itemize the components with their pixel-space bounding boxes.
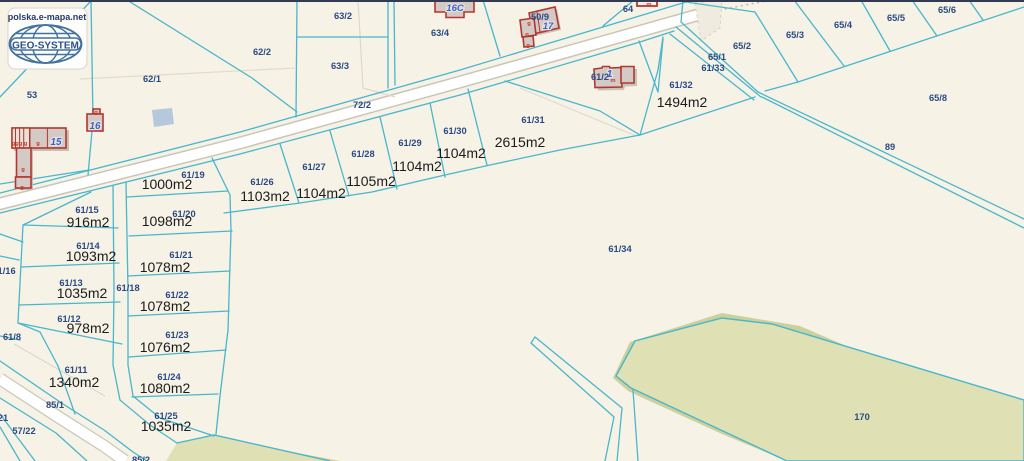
svg-text:15: 15 xyxy=(51,137,62,148)
svg-text:1080m2: 1080m2 xyxy=(140,380,191,396)
svg-text:57/22: 57/22 xyxy=(12,426,35,436)
svg-text:m: m xyxy=(646,2,651,8)
svg-text:1104m2: 1104m2 xyxy=(296,185,346,201)
svg-text:g: g xyxy=(19,141,23,147)
svg-text:53: 53 xyxy=(27,90,37,100)
svg-text:1098m2: 1098m2 xyxy=(142,213,193,229)
svg-text:65/3: 65/3 xyxy=(786,30,804,40)
svg-text:g: g xyxy=(94,110,98,116)
svg-text:16C: 16C xyxy=(446,3,464,14)
svg-text:1104m2: 1104m2 xyxy=(392,158,442,174)
svg-text:1078m2: 1078m2 xyxy=(140,298,191,314)
svg-text:1035m2: 1035m2 xyxy=(141,418,192,434)
svg-text:g: g xyxy=(21,167,25,173)
svg-text:g: g xyxy=(24,141,28,147)
svg-text:62/2: 62/2 xyxy=(253,47,271,57)
svg-text:65/2: 65/2 xyxy=(733,41,751,51)
svg-text:g: g xyxy=(36,141,40,147)
svg-text:2615m2: 2615m2 xyxy=(495,134,546,150)
svg-text:978m2: 978m2 xyxy=(67,320,110,336)
svg-text:61/2: 61/2 xyxy=(591,72,609,82)
svg-text:61/33: 61/33 xyxy=(701,63,724,73)
svg-text:61/32: 61/32 xyxy=(669,80,692,90)
svg-text:65/8: 65/8 xyxy=(929,93,947,103)
svg-text:72/2: 72/2 xyxy=(353,100,371,110)
svg-text:61/31: 61/31 xyxy=(521,115,544,125)
svg-text:61/18: 61/18 xyxy=(116,283,139,293)
svg-text:85/1: 85/1 xyxy=(46,400,64,410)
svg-text:916m2: 916m2 xyxy=(67,214,110,230)
svg-text:65/6: 65/6 xyxy=(938,5,956,15)
svg-text:61/30: 61/30 xyxy=(443,126,466,136)
svg-text:g: g xyxy=(20,185,24,191)
svg-text:g: g xyxy=(527,21,531,27)
svg-text:89: 89 xyxy=(885,142,895,152)
svg-text:17: 17 xyxy=(543,21,554,32)
svg-text:1105m2: 1105m2 xyxy=(346,173,396,189)
svg-text:65/1: 65/1 xyxy=(708,52,726,62)
svg-text:1076m2: 1076m2 xyxy=(140,339,191,355)
svg-text:170: 170 xyxy=(854,412,870,422)
svg-text:62/1: 62/1 xyxy=(143,74,161,84)
svg-text:61/8: 61/8 xyxy=(3,332,21,342)
svg-text:1078m2: 1078m2 xyxy=(140,259,191,275)
svg-text:g: g xyxy=(525,32,529,38)
svg-text:21: 21 xyxy=(0,413,8,423)
svg-text:1103m2: 1103m2 xyxy=(240,188,290,204)
svg-text:65/5: 65/5 xyxy=(887,13,905,23)
svg-text:63/3: 63/3 xyxy=(331,61,349,71)
svg-text:GEO-SYSTEM: GEO-SYSTEM xyxy=(12,41,79,52)
svg-text:61/26: 61/26 xyxy=(250,177,273,187)
svg-text:1093m2: 1093m2 xyxy=(66,248,117,264)
svg-text:85/2: 85/2 xyxy=(132,455,150,461)
svg-text:1494m2: 1494m2 xyxy=(657,94,708,110)
svg-text:polska.e-mapa.net: polska.e-mapa.net xyxy=(8,12,87,22)
svg-text:64: 64 xyxy=(623,4,634,14)
svg-text:61/28: 61/28 xyxy=(351,149,374,159)
svg-text:61/27: 61/27 xyxy=(302,162,325,172)
svg-text:63/2: 63/2 xyxy=(334,11,352,21)
svg-text:1000m2: 1000m2 xyxy=(142,176,193,192)
svg-text:61/16: 61/16 xyxy=(0,266,16,276)
svg-text:1104m2: 1104m2 xyxy=(436,145,486,161)
svg-text:1035m2: 1035m2 xyxy=(57,285,108,301)
svg-text:61/29: 61/29 xyxy=(398,138,421,148)
svg-text:g: g xyxy=(526,43,530,49)
svg-text:61/34: 61/34 xyxy=(608,244,632,254)
svg-text:1340m2: 1340m2 xyxy=(49,374,100,390)
svg-text:m: m xyxy=(610,78,615,84)
svg-text:65/4: 65/4 xyxy=(834,20,853,30)
svg-text:16: 16 xyxy=(90,121,101,132)
svg-text:63/4: 63/4 xyxy=(431,28,450,38)
